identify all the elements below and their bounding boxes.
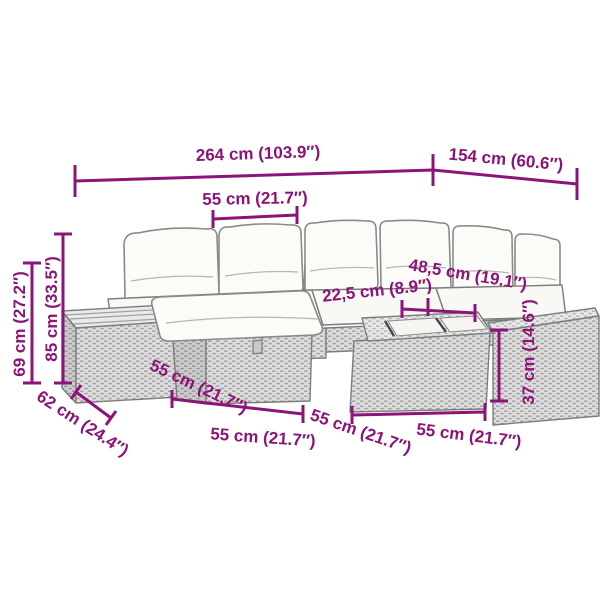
dim-line-total (75, 170, 577, 184)
ottoman (152, 291, 323, 404)
dim-ottoman-width-label: 55 cm (21.7″) (210, 424, 317, 450)
ottoman-handle (253, 340, 262, 354)
ottoman-cushion (152, 291, 323, 341)
back-cushion (219, 224, 303, 301)
right-table-front (493, 316, 599, 425)
dim-total-width-label: 264 cm (103.9″) (196, 142, 321, 165)
dim-total-depth-label: 154 cm (60.6″) (448, 145, 564, 175)
furniture-dimension-diagram: 264 cm (103.9″) 154 cm (60.6″) 55 cm (21… (0, 0, 600, 600)
dim-back-height-label: 85 cm (33.5″) (42, 256, 61, 361)
right-side-table (488, 308, 599, 425)
dim-seat-top-label: 55 cm (21.7″) (202, 188, 308, 209)
product-dimension-image: 264 cm (103.9″) 154 cm (60.6″) 55 cm (21… (0, 0, 600, 600)
dim-arm-height-label: 69 cm (27.2″) (10, 271, 29, 376)
coffee-table-front (350, 333, 490, 412)
coffee-table (350, 312, 492, 412)
dim-table-height-label: 37 cm (14.6″) (519, 299, 538, 404)
